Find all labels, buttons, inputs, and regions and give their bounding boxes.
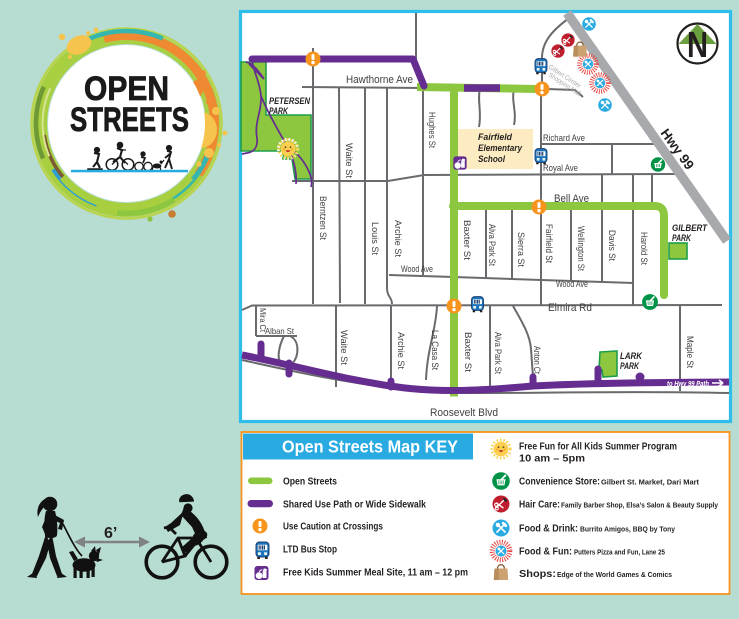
svg-text:Mira Ct: Mira Ct xyxy=(258,308,268,333)
svg-text:Elementary: Elementary xyxy=(478,143,523,154)
svg-text:Hawthorne Ave: Hawthorne Ave xyxy=(346,74,413,86)
svg-text:to Hwy 99 Path: to Hwy 99 Path xyxy=(667,379,709,388)
svg-text:Archie St: Archie St xyxy=(392,220,403,257)
svg-text:PARK: PARK xyxy=(269,106,289,117)
svg-text:Richard Ave: Richard Ave xyxy=(543,133,585,144)
svg-text:Hughes St: Hughes St xyxy=(426,112,437,148)
svg-text:Hair Care:: Hair Care: xyxy=(519,499,560,511)
svg-text:Wood Ave: Wood Ave xyxy=(401,264,433,274)
svg-text:N: N xyxy=(687,24,708,65)
svg-text:Fairfield St: Fairfield St xyxy=(543,224,554,263)
svg-text:Open Streets: Open Streets xyxy=(283,477,337,488)
svg-text:Family Barber Shop, Elsa’s Sal: Family Barber Shop, Elsa’s Salon & Beaut… xyxy=(561,501,719,510)
svg-text:Davis St: Davis St xyxy=(606,230,617,261)
svg-text:Alva Park St: Alva Park St xyxy=(486,224,497,266)
svg-text:Edge of the World Games & Comi: Edge of the World Games & Comics xyxy=(557,570,672,579)
svg-text:Convenience Store:: Convenience Store: xyxy=(519,476,600,488)
svg-text:Archie St: Archie St xyxy=(395,332,406,369)
svg-text:Anton Ct: Anton Ct xyxy=(531,346,542,374)
svg-text:Elmira Rd: Elmira Rd xyxy=(548,302,592,314)
svg-text:Food & Drink:: Food & Drink: xyxy=(519,523,578,535)
svg-text:School: School xyxy=(478,154,505,165)
svg-text:Baxter St: Baxter St xyxy=(462,332,473,372)
svg-text:Roosevelt Blvd: Roosevelt Blvd xyxy=(430,407,498,419)
svg-text:10 am – 5pm: 10 am – 5pm xyxy=(519,454,585,465)
svg-text:Alva Park St: Alva Park St xyxy=(492,332,503,374)
svg-text:Baxter St: Baxter St xyxy=(461,220,472,260)
svg-text:Free Fun for All Kids Summer P: Free Fun for All Kids Summer Program xyxy=(519,442,677,453)
svg-text:STREETS: STREETS xyxy=(70,101,189,139)
svg-text:Alban St: Alban St xyxy=(265,326,295,336)
svg-text:Waite St: Waite St xyxy=(338,330,349,365)
svg-text:Shared Use Path or Wide Sidewa: Shared Use Path or Wide Sidewalk xyxy=(283,500,426,511)
svg-text:Free Kids Summer Meal Site, 11: Free Kids Summer Meal Site, 11 am – 12 p… xyxy=(283,568,468,579)
svg-text:Shops:: Shops: xyxy=(519,568,556,580)
svg-text:6’: 6’ xyxy=(104,525,117,542)
svg-text:Food & Fun:: Food & Fun: xyxy=(519,546,572,558)
svg-text:Wood Ave: Wood Ave xyxy=(556,279,588,289)
svg-text:Berntzen St: Berntzen St xyxy=(317,196,328,240)
svg-text:Gilbert St. Market, Dari Mart: Gilbert St. Market, Dari Mart xyxy=(601,478,700,487)
svg-text:PARK: PARK xyxy=(672,233,692,244)
svg-text:Fairfield: Fairfield xyxy=(478,132,512,143)
svg-text:Burrito Amigos, BBQ by Tony: Burrito Amigos, BBQ by Tony xyxy=(580,525,676,534)
svg-text:Royal Ave: Royal Ave xyxy=(543,163,578,174)
svg-text:Use Caution at Crossings: Use Caution at Crossings xyxy=(283,522,383,533)
svg-text:LTD Bus Stop: LTD Bus Stop xyxy=(283,545,337,556)
svg-text:Bell Ave: Bell Ave xyxy=(554,193,589,205)
svg-text:Sierra St: Sierra St xyxy=(515,232,526,267)
svg-text:Waite St: Waite St xyxy=(343,143,354,178)
svg-text:La Casa St: La Casa St xyxy=(429,330,440,370)
svg-text:Louis St: Louis St xyxy=(369,222,380,255)
svg-text:Putters Pizza and Fun, Lane 25: Putters Pizza and Fun, Lane 25 xyxy=(574,548,665,557)
svg-text:Open Streets Map KEY: Open Streets Map KEY xyxy=(282,437,458,457)
svg-text:Wellington St: Wellington St xyxy=(575,226,586,271)
svg-text:Harold St: Harold St xyxy=(638,232,649,265)
svg-text:Maple St: Maple St xyxy=(684,336,695,368)
svg-text:PARK: PARK xyxy=(620,361,640,372)
